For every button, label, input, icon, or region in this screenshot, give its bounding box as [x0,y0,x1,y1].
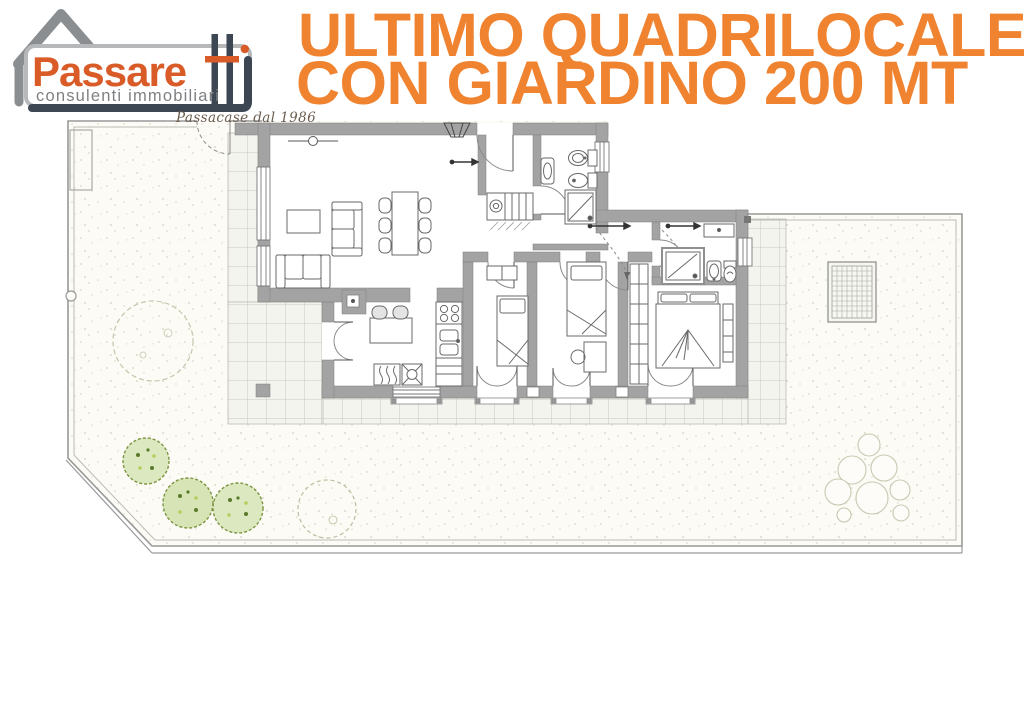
corner-dot [744,216,751,223]
dining-chair [419,238,431,253]
kitchen-table [370,318,412,343]
single-bed [567,262,606,336]
dining-table [392,192,418,255]
toilet-icon [724,261,736,282]
washbasin-icon [707,261,721,281]
dining-chair [419,198,431,213]
living-window-left-1 [257,167,270,240]
kitchen-window [393,387,440,397]
patio-pillar [256,384,270,397]
sofa [276,255,330,288]
living-window-left-2 [257,246,270,286]
single-bed [497,296,528,366]
wardrobe [630,264,648,384]
washbasin-icon [541,158,554,184]
kitchen-chair [393,306,408,319]
logo-tagline: consulenti immobiliari [36,87,220,105]
i-dot [241,45,249,53]
coffee-table [287,210,320,233]
chaise-sofa [332,202,362,256]
dining-chair [379,238,391,253]
logo-slogan: Passacase dal 1986 [176,110,316,126]
gate-hinge-marker [66,291,76,301]
tti-crossbar [205,56,239,63]
desk [584,342,606,372]
shower-icon [565,190,596,224]
dining-table-set [379,192,431,255]
shower-icon [662,248,704,284]
bidet-icon [569,173,598,188]
kitchen-chair [372,306,387,319]
real-estate-flyer: Passare consulenti immobiliari Passacase… [0,0,1024,724]
dining-chair [379,198,391,213]
headline-line2: CON GIARDINO 200 MT [296,53,968,114]
double-bed [656,292,720,368]
drain-grate-icon [828,262,876,322]
dining-chair [419,218,431,233]
bedroom-bench [723,304,733,362]
pillar-dot [351,299,355,303]
dining-chair [379,218,391,233]
toilet-icon [569,150,598,166]
bath2-window [738,238,752,266]
